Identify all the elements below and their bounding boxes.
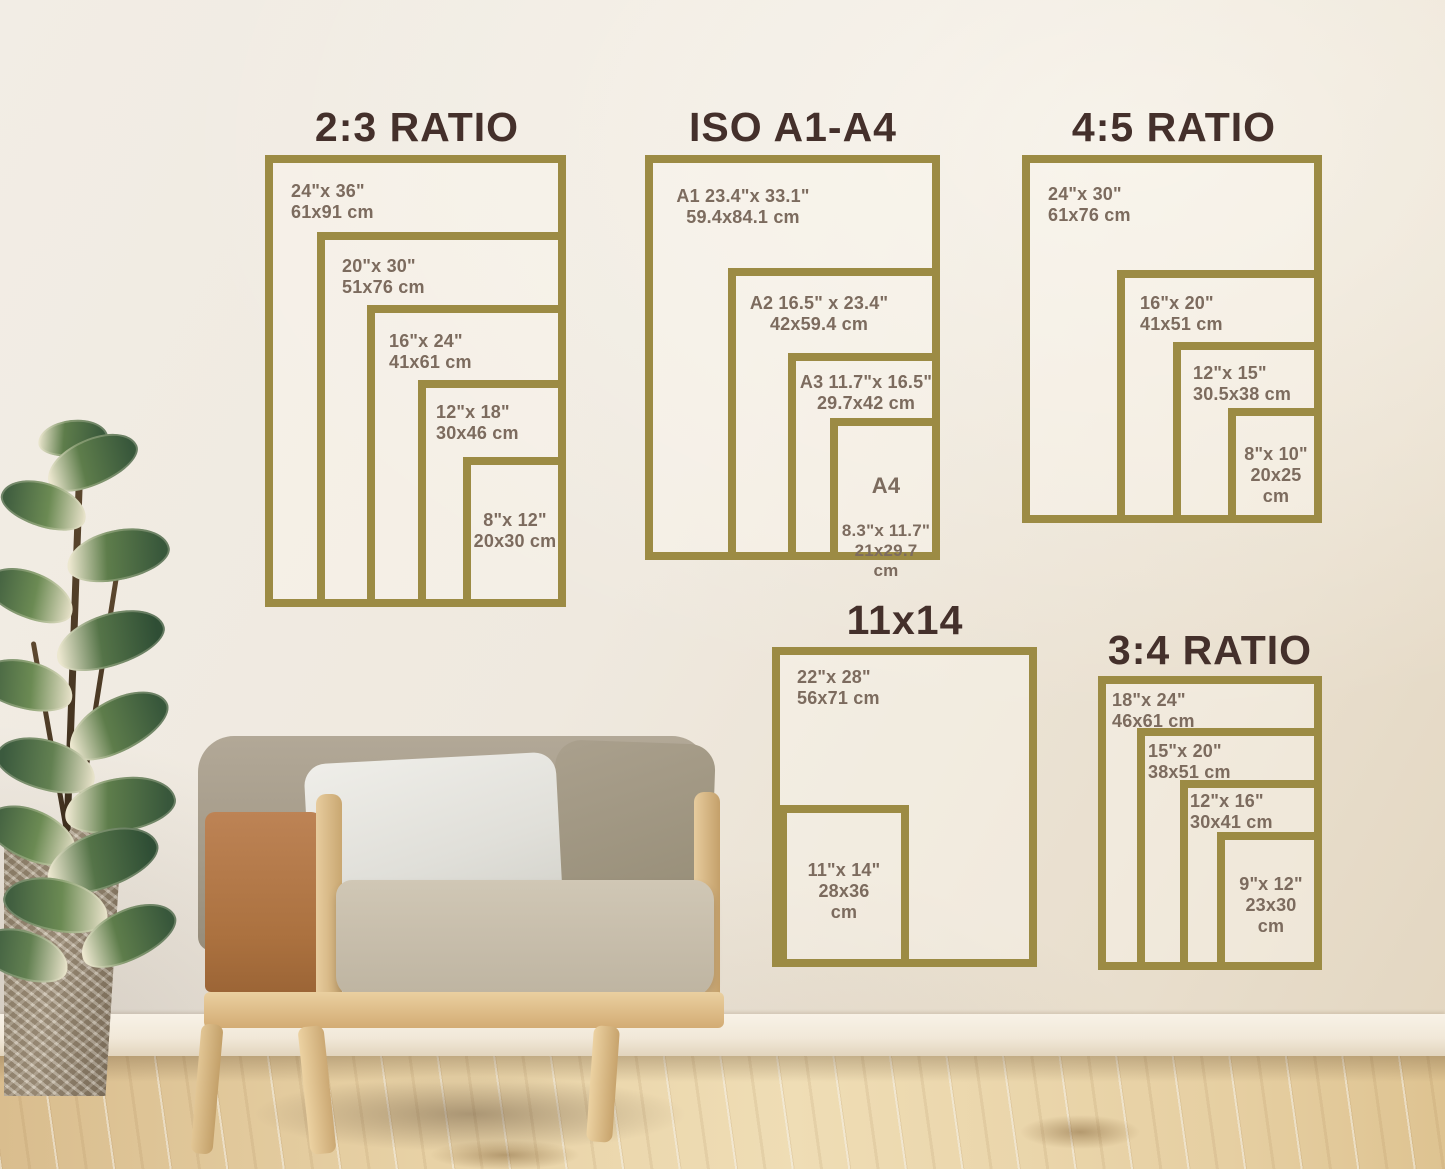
label-8x10: 8"x 10" 20x25 cm bbox=[1244, 444, 1308, 507]
label-a1: A1 23.4"x 33.1" 59.4x84.1 cm bbox=[676, 186, 809, 228]
label-16x24: 16"x 24" 41x61 cm bbox=[389, 331, 472, 373]
label-8x12: 8"x 12" 20x30 cm bbox=[474, 510, 557, 552]
label-18x24: 18"x 24" 46x61 cm bbox=[1112, 690, 1195, 732]
chair-shadow bbox=[170, 1062, 770, 1166]
chart-title-11x14: 11x14 bbox=[847, 597, 964, 644]
label-a2: A2 16.5" x 23.4" 42x59.4 cm bbox=[750, 293, 888, 335]
label-a4-name: A4 bbox=[842, 473, 930, 499]
label-a4: A4 8.3"x 11.7" 21x29.7 cm bbox=[842, 452, 930, 602]
label-12x16: 12"x 16" 30x41 cm bbox=[1190, 791, 1273, 833]
label-15x20: 15"x 20" 38x51 cm bbox=[1148, 741, 1231, 783]
label-24x36: 24"x 36" 61x91 cm bbox=[291, 181, 374, 223]
label-12x15: 12"x 15" 30.5x38 cm bbox=[1193, 363, 1291, 405]
chair-seat-rail bbox=[204, 992, 724, 1028]
chart-title-3-4-ratio: 3:4 RATIO bbox=[1108, 627, 1312, 674]
room-scene: 2:3 RATIO 24"x 36" 61x91 cm 20"x 30" 51x… bbox=[0, 0, 1445, 1169]
chair-leather-panel bbox=[205, 812, 323, 992]
chart-title-4-5-ratio: 4:5 RATIO bbox=[1072, 104, 1276, 151]
chart-title-iso-a1-a4: ISO A1-A4 bbox=[689, 104, 897, 151]
label-24x30: 24"x 30" 61x76 cm bbox=[1048, 184, 1131, 226]
floor-knot bbox=[1020, 1115, 1140, 1149]
label-a3: A3 11.7"x 16.5" 29.7x42 cm bbox=[800, 372, 932, 414]
label-a4-dims: 8.3"x 11.7" 21x29.7 cm bbox=[842, 521, 930, 581]
label-9x12: 9"x 12" 23x30 cm bbox=[1239, 874, 1303, 937]
label-12x18: 12"x 18" 30x46 cm bbox=[436, 402, 519, 444]
label-16x20: 16"x 20" 41x51 cm bbox=[1140, 293, 1223, 335]
chair-seat-cushion bbox=[336, 880, 714, 998]
label-22x28: 22"x 28" 56x71 cm bbox=[797, 667, 880, 709]
label-11x14: 11"x 14" 28x36 cm bbox=[808, 860, 881, 923]
chart-title-2-3-ratio: 2:3 RATIO bbox=[315, 104, 519, 151]
label-20x30: 20"x 30" 51x76 cm bbox=[342, 256, 425, 298]
